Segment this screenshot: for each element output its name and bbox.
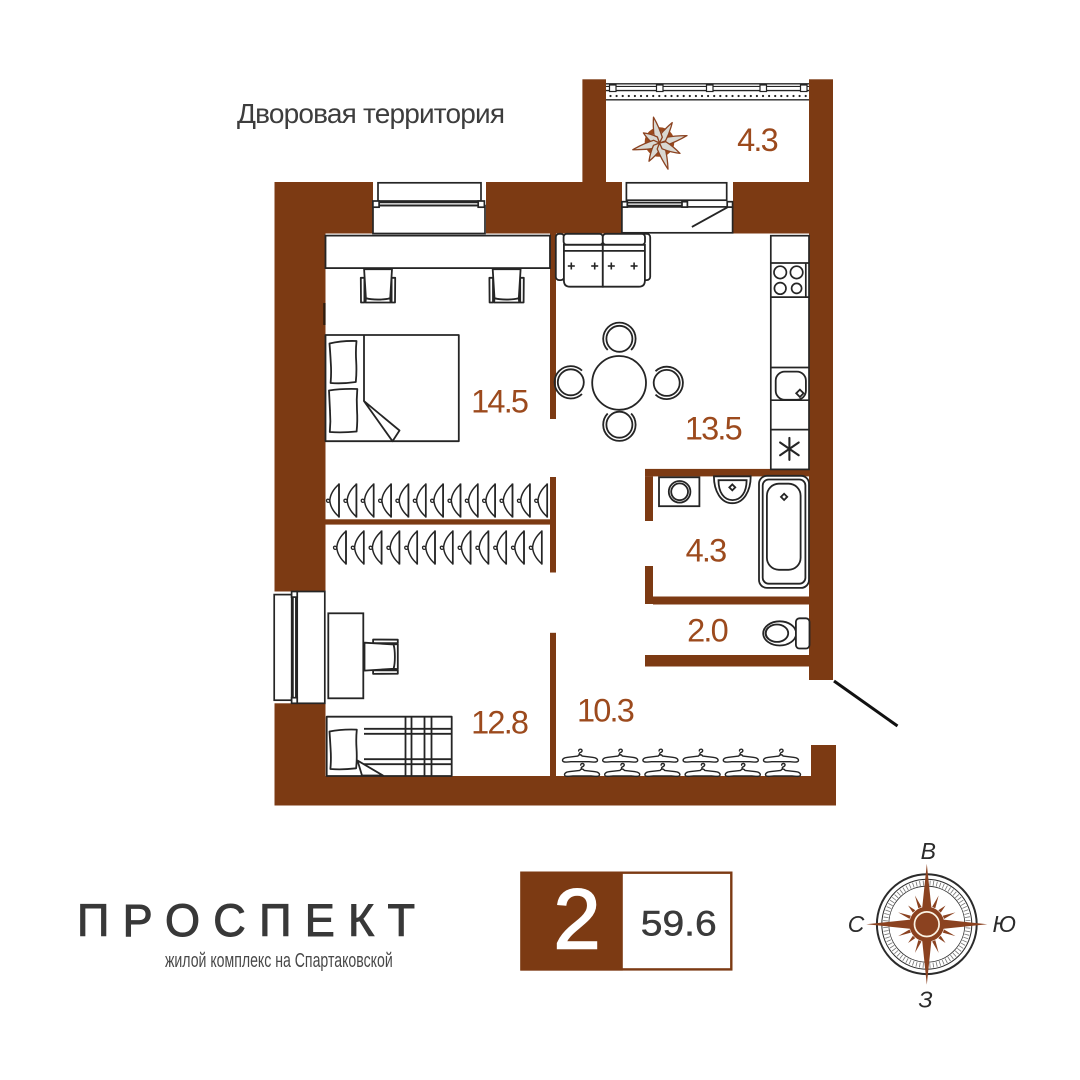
svg-text:4.3: 4.3 (686, 533, 727, 569)
svg-text:13.5: 13.5 (685, 410, 742, 446)
svg-text:59.6: 59.6 (641, 905, 717, 944)
svg-text:14.5: 14.5 (471, 384, 528, 420)
svg-text:жилой комплекс на Спартаковско: жилой комплекс на Спартаковской (165, 950, 393, 972)
svg-text:Ю: Ю (993, 911, 1017, 937)
svg-text:ПРОСПЕКТ: ПРОСПЕКТ (77, 895, 428, 946)
svg-text:З: З (919, 986, 933, 1012)
svg-text:В: В (921, 838, 936, 864)
svg-text:Дворовая территория: Дворовая территория (237, 98, 505, 129)
svg-text:С: С (848, 911, 865, 937)
svg-text:2: 2 (553, 873, 600, 968)
svg-text:12.8: 12.8 (471, 704, 528, 740)
svg-text:10.3: 10.3 (577, 693, 634, 729)
svg-text:2.0: 2.0 (687, 613, 728, 649)
svg-text:4.3: 4.3 (737, 122, 778, 158)
